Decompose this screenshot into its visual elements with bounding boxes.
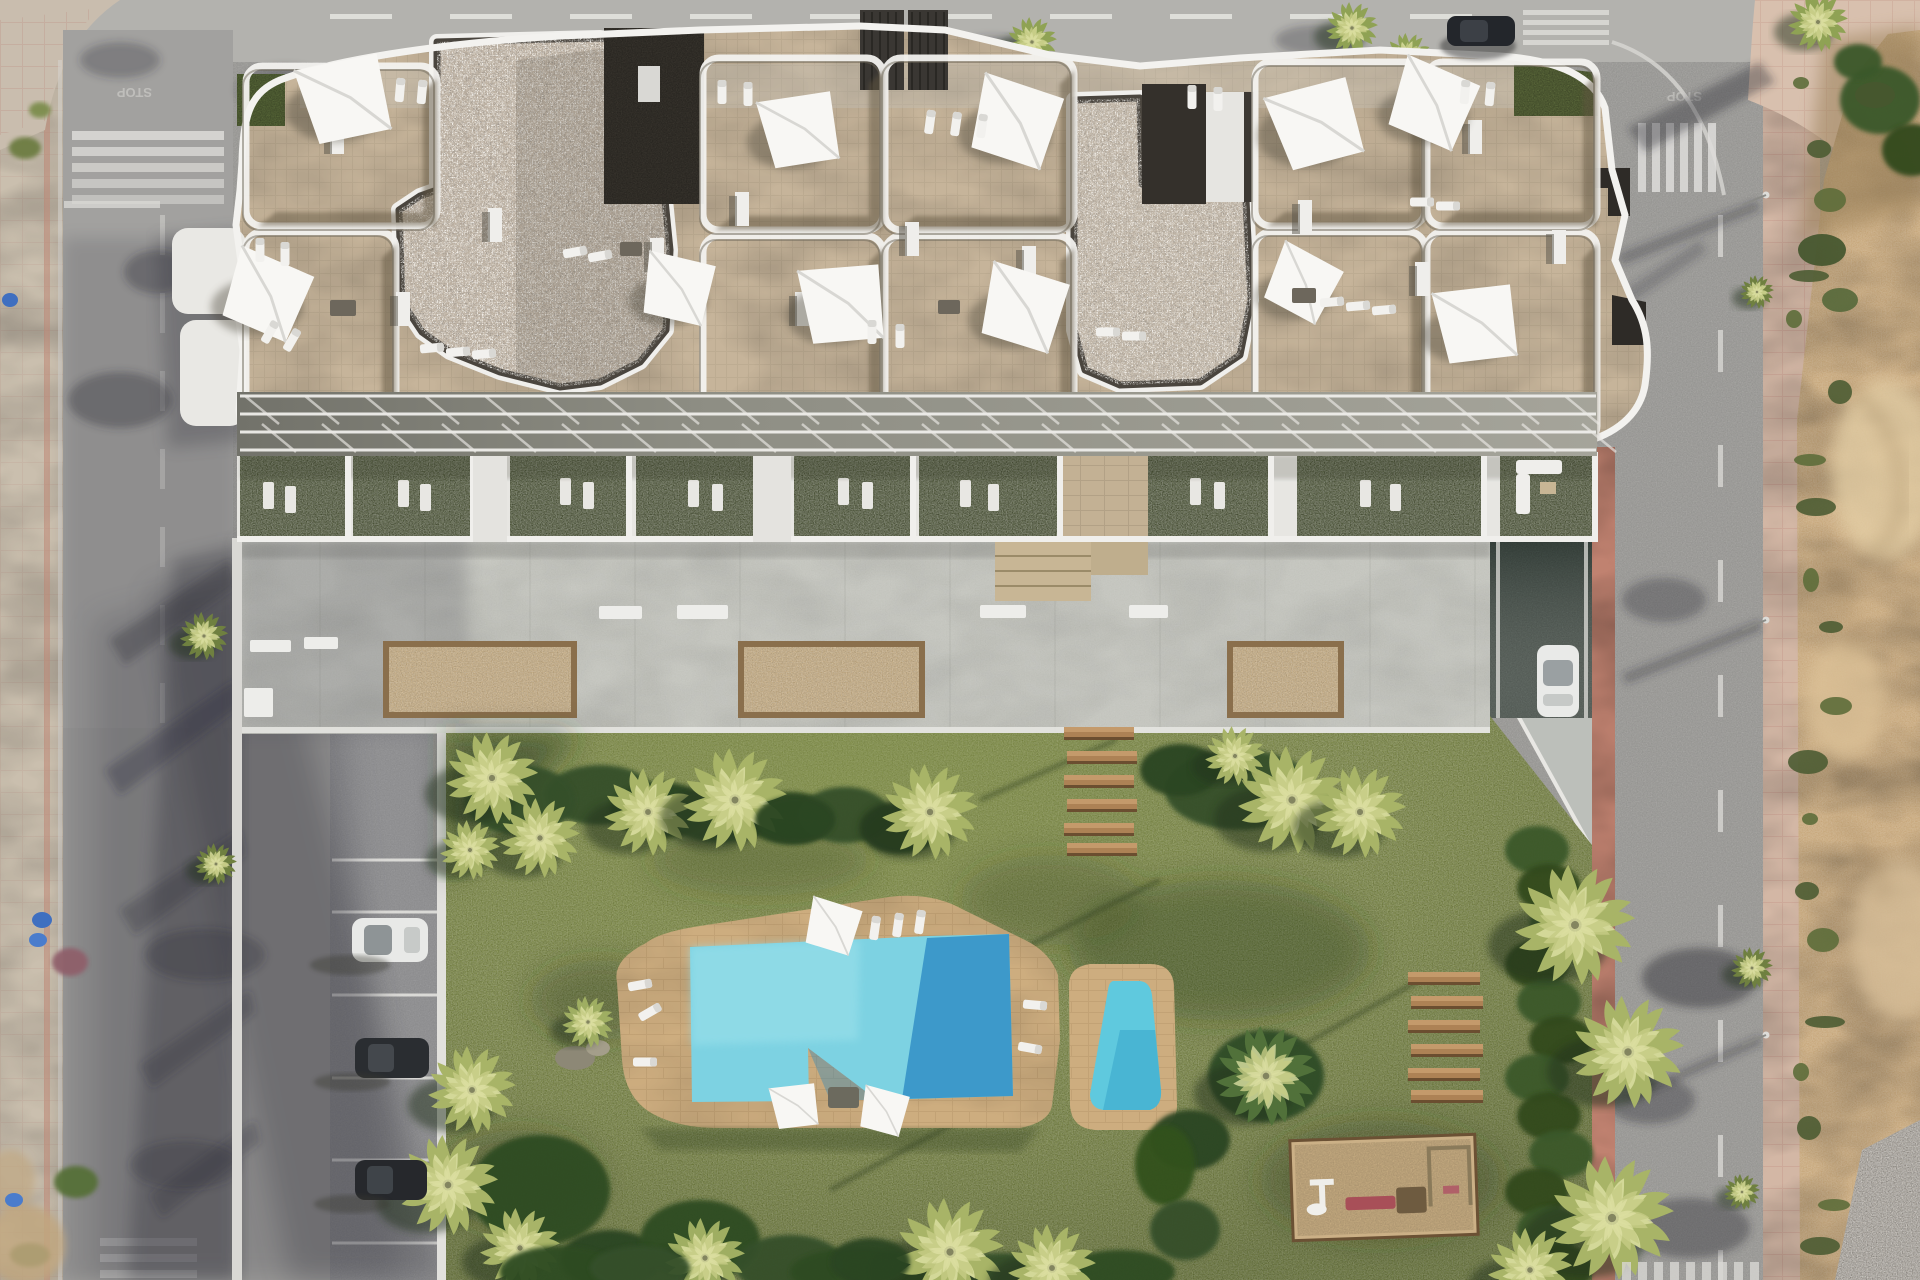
svg-text:STOP: STOP [117,85,152,100]
